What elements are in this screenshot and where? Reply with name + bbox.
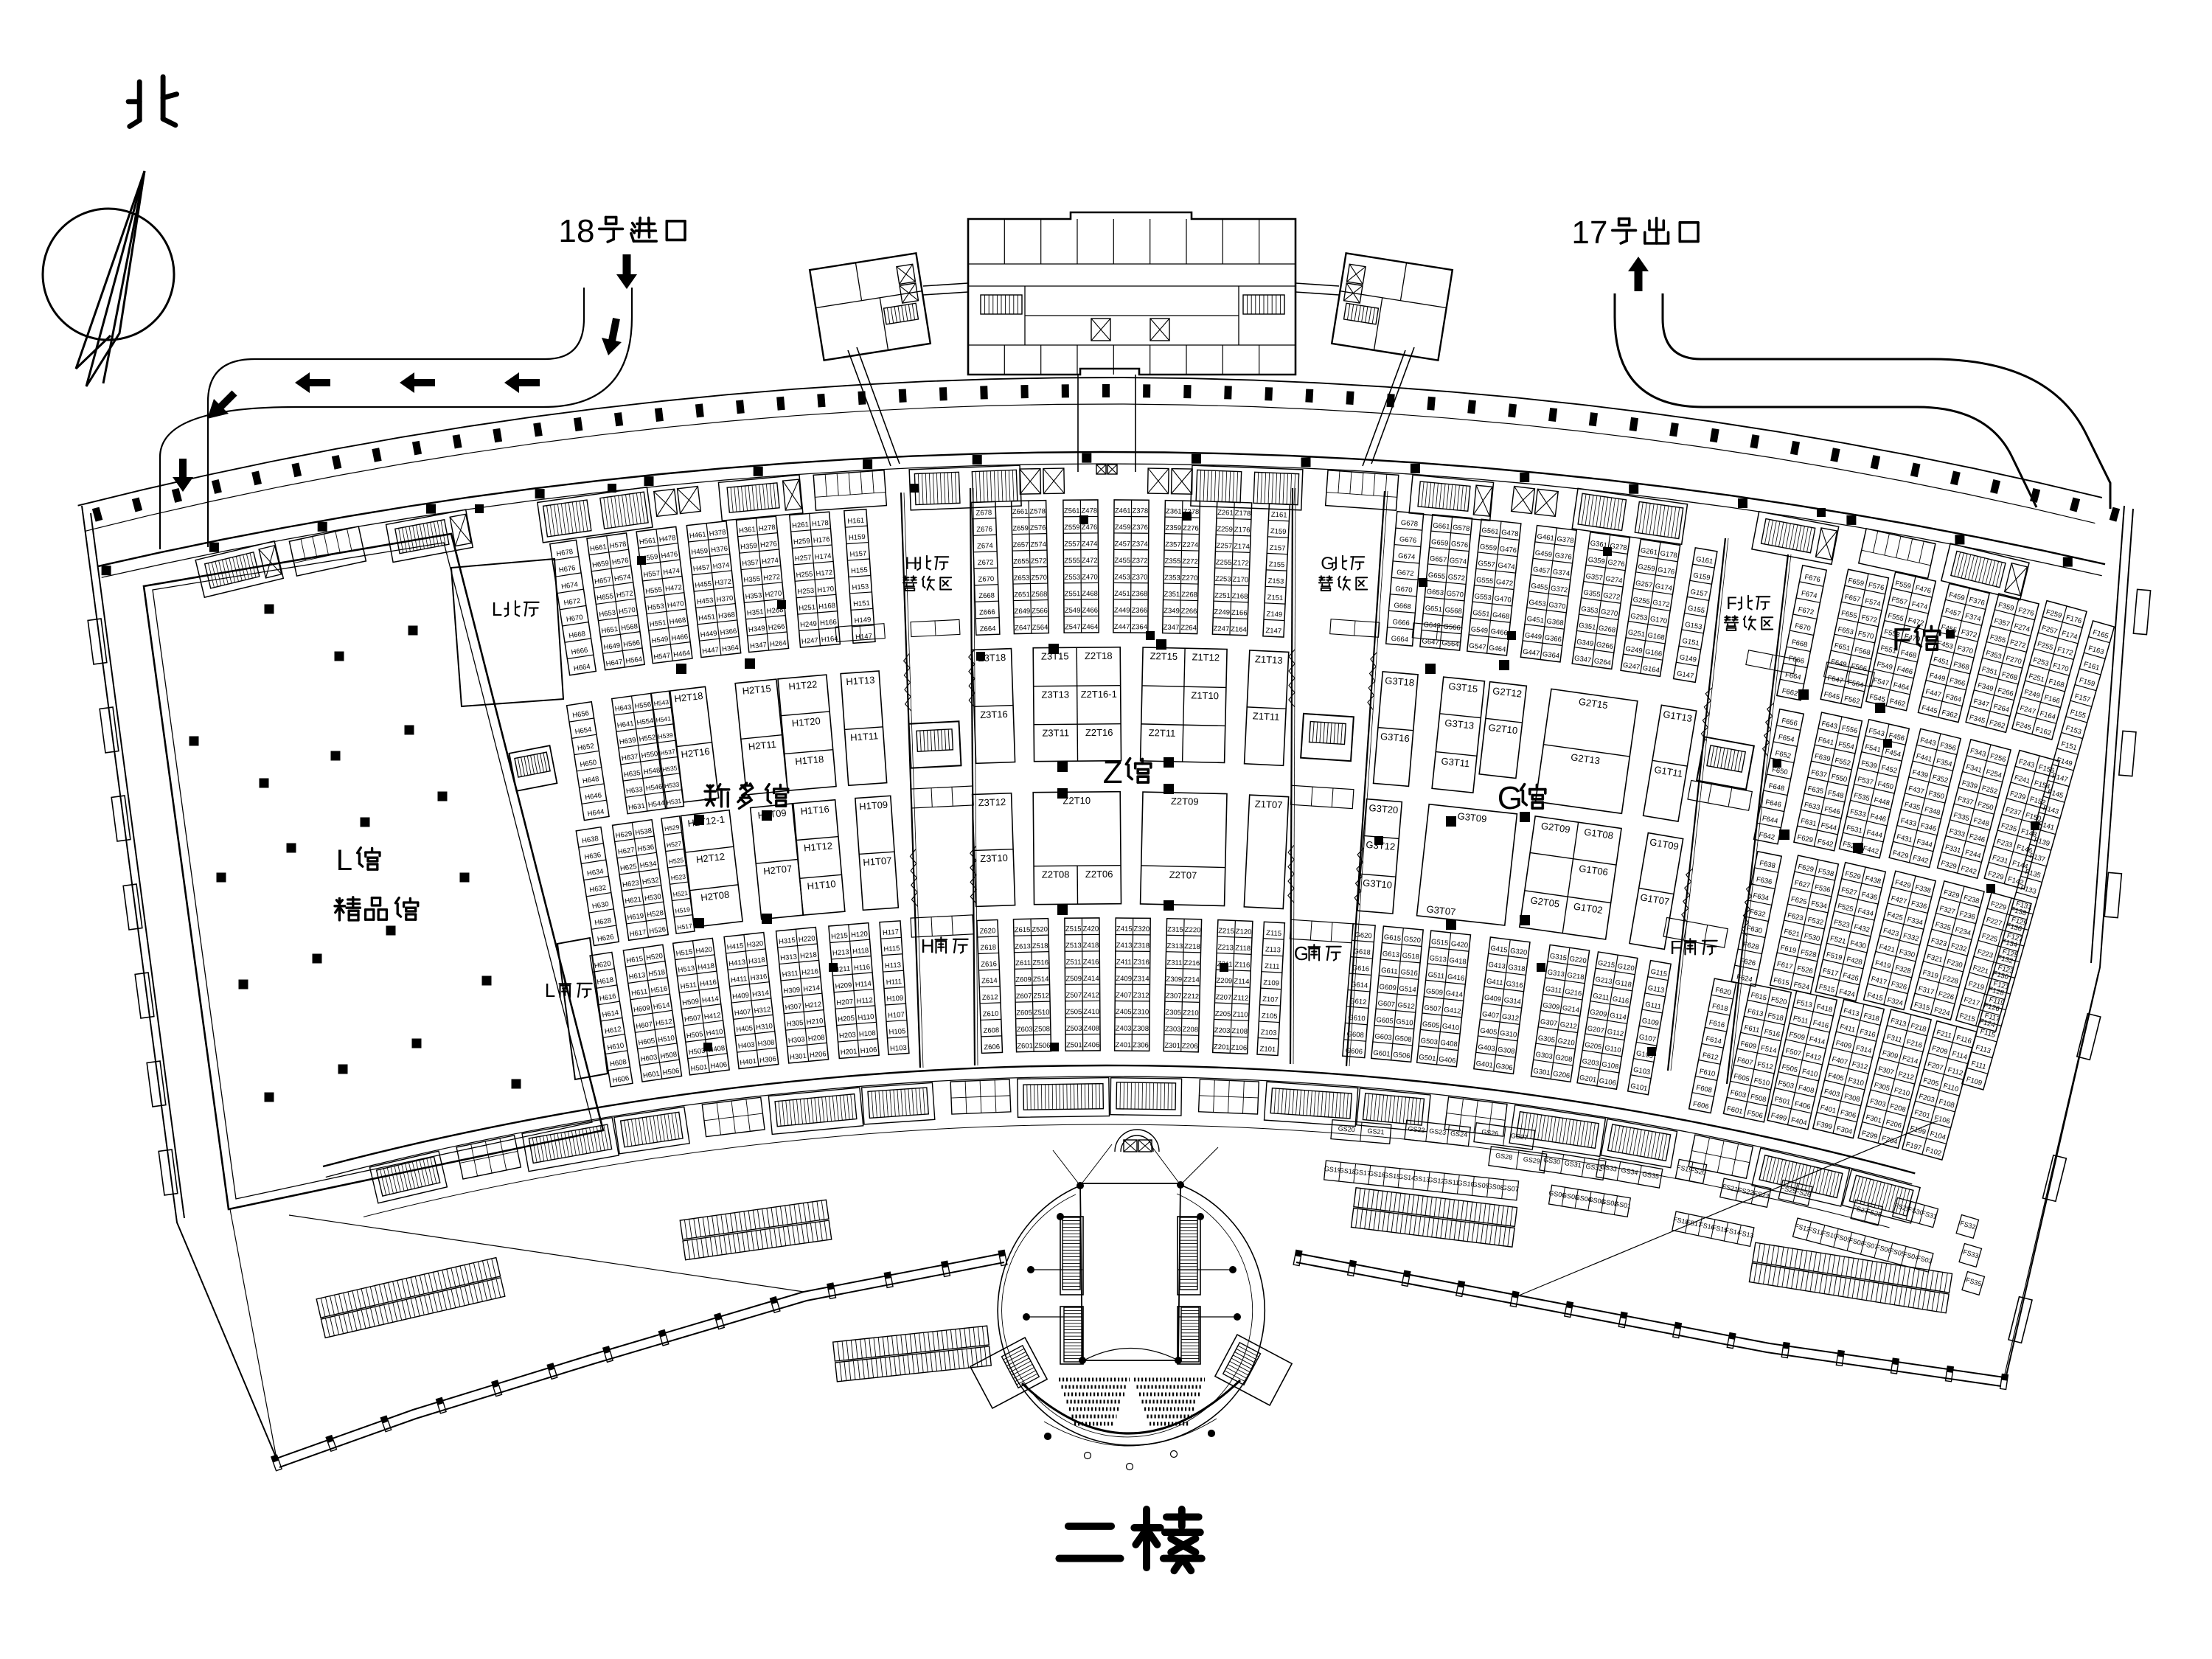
svg-text:Z457: Z457	[1115, 540, 1131, 549]
svg-text:Z174: Z174	[1234, 543, 1250, 552]
svg-text:G607: G607	[1377, 999, 1395, 1009]
svg-text:H120: H120	[851, 930, 869, 939]
svg-text:Z607: Z607	[1016, 992, 1032, 1001]
svg-text:H272: H272	[763, 573, 781, 582]
svg-text:Z605: Z605	[1016, 1009, 1032, 1017]
svg-text:Z251: Z251	[1214, 591, 1231, 600]
svg-text:Z1T11: Z1T11	[1252, 710, 1279, 723]
svg-text:H351: H351	[746, 608, 764, 618]
svg-text:Z311: Z311	[1166, 959, 1182, 967]
svg-text:G518: G518	[1402, 952, 1419, 961]
svg-text:Z172: Z172	[1233, 559, 1249, 568]
svg-text:Z1T12: Z1T12	[1192, 651, 1220, 663]
svg-text:Z561: Z561	[1064, 507, 1080, 515]
svg-text:Z208: Z208	[1182, 1026, 1198, 1034]
svg-text:Z408: Z408	[1083, 1025, 1099, 1033]
svg-text:H303: H303	[788, 1035, 806, 1045]
svg-text:G651: G651	[1425, 604, 1442, 613]
svg-text:Z506: Z506	[1034, 1042, 1051, 1050]
svg-text:H355: H355	[743, 575, 761, 585]
svg-text:Z111: Z111	[1265, 962, 1280, 971]
svg-text:Z207: Z207	[1215, 993, 1231, 1002]
svg-text:H118: H118	[852, 947, 869, 956]
svg-text:GS20: GS20	[1338, 1124, 1355, 1133]
svg-text:G: G	[1498, 780, 1523, 816]
svg-text:Z507: Z507	[1065, 992, 1082, 1000]
svg-text:G672: G672	[1397, 568, 1414, 578]
svg-text:H113: H113	[885, 961, 902, 970]
svg-text:Z170: Z170	[1232, 576, 1248, 585]
svg-text:Z155: Z155	[1268, 560, 1284, 569]
svg-text:Z2T16: Z2T16	[1085, 727, 1113, 738]
svg-text:Z668: Z668	[978, 591, 995, 600]
svg-text:Z270: Z270	[1182, 574, 1198, 582]
svg-text:H: H	[905, 554, 917, 574]
svg-text:H209: H209	[835, 981, 852, 991]
svg-text:Z674: Z674	[977, 542, 993, 551]
svg-text:Z613: Z613	[1015, 942, 1031, 950]
svg-text:Z107: Z107	[1262, 995, 1279, 1004]
svg-text:Z508: Z508	[1034, 1025, 1050, 1033]
svg-text:Z410: Z410	[1083, 1008, 1099, 1016]
svg-text:Z151: Z151	[1267, 594, 1283, 602]
svg-text:H255: H255	[796, 570, 813, 580]
svg-text:Z412: Z412	[1083, 992, 1099, 1000]
svg-text:G661: G661	[1433, 521, 1450, 531]
svg-text:H207: H207	[836, 998, 854, 1007]
svg-text:Z112: Z112	[1233, 994, 1248, 1003]
svg-text:Z406: Z406	[1084, 1041, 1100, 1049]
svg-text:Z520: Z520	[1032, 925, 1048, 933]
svg-text:H1T09: H1T09	[859, 799, 888, 813]
svg-text:Z455: Z455	[1114, 557, 1130, 565]
svg-text:Z103: Z103	[1260, 1029, 1276, 1037]
svg-text:Z503: Z503	[1066, 1025, 1082, 1033]
svg-text:Z578: Z578	[1029, 507, 1046, 515]
svg-text:H301: H301	[790, 1052, 807, 1062]
svg-text:Z309: Z309	[1166, 975, 1182, 984]
svg-text:Z216: Z216	[1183, 959, 1200, 968]
svg-text:Z359: Z359	[1165, 524, 1181, 532]
svg-text:Z1T13: Z1T13	[1255, 653, 1283, 666]
svg-text:Z161: Z161	[1271, 511, 1287, 520]
svg-text:Z220: Z220	[1185, 926, 1201, 935]
svg-text:H220: H220	[798, 934, 815, 944]
svg-text:H259: H259	[793, 537, 811, 546]
svg-text:Z451: Z451	[1114, 590, 1130, 598]
svg-text:H218: H218	[800, 951, 818, 961]
svg-text:G514: G514	[1399, 985, 1416, 995]
svg-text:Z261: Z261	[1217, 509, 1234, 518]
svg-text:G510: G510	[1396, 1018, 1413, 1027]
svg-text:Z157: Z157	[1269, 544, 1285, 553]
svg-text:Z572: Z572	[1031, 557, 1047, 566]
svg-text:H264: H264	[770, 639, 787, 649]
svg-text:G657: G657	[1430, 554, 1447, 564]
svg-text:Z557: Z557	[1064, 540, 1080, 549]
svg-text:H110: H110	[858, 1013, 874, 1023]
svg-text:Z268: Z268	[1181, 591, 1197, 599]
svg-text:Z403: Z403	[1116, 1025, 1132, 1033]
svg-text:F: F	[1670, 936, 1682, 959]
svg-text:H107: H107	[888, 1011, 905, 1020]
svg-text:H349: H349	[748, 625, 766, 634]
svg-text:1: 1	[558, 213, 576, 249]
svg-text:H359: H359	[740, 542, 758, 552]
svg-text:Z201: Z201	[1214, 1043, 1230, 1052]
svg-text:H247: H247	[801, 636, 819, 646]
svg-text:G616: G616	[1352, 964, 1369, 973]
svg-text:Z312: Z312	[1133, 992, 1150, 1000]
svg-text:Z3T11: Z3T11	[1042, 727, 1069, 738]
svg-text:H117: H117	[883, 928, 900, 937]
svg-text:H313: H313	[780, 953, 798, 962]
svg-text:Z601: Z601	[1017, 1042, 1033, 1050]
svg-text:G606: G606	[1345, 1047, 1363, 1057]
svg-text:Z414: Z414	[1083, 975, 1099, 983]
svg-text:G: G	[1321, 554, 1335, 574]
svg-text:Z566: Z566	[1032, 607, 1048, 615]
svg-text:H159: H159	[849, 533, 866, 543]
svg-text:G508: G508	[1394, 1034, 1412, 1044]
svg-text:Z315: Z315	[1167, 925, 1183, 934]
svg-text:H103: H103	[890, 1044, 907, 1053]
svg-text:Z614: Z614	[981, 977, 998, 986]
svg-text:Z114: Z114	[1234, 978, 1249, 987]
svg-text:Z515: Z515	[1065, 925, 1082, 933]
svg-text:Z368: Z368	[1132, 590, 1148, 598]
svg-text:H361: H361	[739, 526, 757, 535]
svg-text:G512: G512	[1397, 1001, 1415, 1011]
svg-text:L: L	[545, 979, 555, 1001]
svg-text:Z510: Z510	[1034, 1009, 1050, 1017]
svg-text:H249: H249	[800, 620, 818, 630]
svg-text:7: 7	[1590, 215, 1607, 251]
svg-text:Z320: Z320	[1133, 925, 1150, 933]
svg-text:Z364: Z364	[1131, 623, 1147, 631]
svg-text:Z420: Z420	[1082, 925, 1099, 933]
svg-text:Z255: Z255	[1216, 558, 1232, 567]
svg-text:Z303: Z303	[1165, 1025, 1181, 1034]
svg-text:Z553: Z553	[1064, 574, 1080, 582]
svg-text:Z205: Z205	[1214, 1010, 1231, 1019]
svg-text:Z115: Z115	[1266, 929, 1282, 938]
svg-text:Z516: Z516	[1032, 959, 1048, 967]
svg-text:Z314: Z314	[1133, 975, 1150, 983]
svg-text:H170: H170	[817, 585, 835, 595]
svg-text:Z449: Z449	[1114, 607, 1130, 615]
svg-text:Z409: Z409	[1116, 975, 1132, 983]
svg-text:Z308: Z308	[1133, 1025, 1149, 1033]
svg-text:Z405: Z405	[1116, 1008, 1132, 1016]
svg-text:H270: H270	[765, 590, 782, 599]
svg-text:Z264: Z264	[1180, 624, 1197, 632]
svg-text:L: L	[336, 844, 352, 877]
svg-text:8: 8	[577, 213, 594, 249]
svg-text:Z3T16: Z3T16	[980, 709, 1008, 720]
svg-text:G576: G576	[1451, 540, 1469, 549]
svg-text:Z247: Z247	[1213, 625, 1229, 633]
svg-text:H315: H315	[779, 936, 796, 946]
svg-text:Z370: Z370	[1132, 574, 1148, 582]
svg-text:H153: H153	[852, 582, 869, 592]
svg-text:H109: H109	[886, 994, 903, 1003]
svg-text:Z307: Z307	[1166, 992, 1182, 1001]
svg-text:Z547: Z547	[1065, 623, 1081, 631]
svg-text:Z353: Z353	[1164, 574, 1180, 582]
svg-text:Z672: Z672	[978, 558, 994, 567]
svg-text:Z564: Z564	[1032, 624, 1048, 632]
svg-text:Z316: Z316	[1133, 959, 1150, 967]
svg-text:H266: H266	[768, 622, 785, 632]
svg-text:Z518: Z518	[1032, 942, 1048, 950]
svg-text:Z478: Z478	[1081, 507, 1097, 515]
svg-text:G570: G570	[1446, 590, 1464, 599]
svg-text:Z661: Z661	[1012, 508, 1029, 516]
svg-text:Z178: Z178	[1234, 509, 1251, 518]
svg-text:Z164: Z164	[1231, 625, 1247, 634]
svg-text:Z415: Z415	[1116, 925, 1133, 933]
svg-text:H357: H357	[742, 558, 759, 568]
svg-text:Z110: Z110	[1232, 1011, 1248, 1020]
svg-text:G674: G674	[1398, 552, 1416, 562]
svg-text:Z474: Z474	[1082, 540, 1098, 549]
svg-text:H203: H203	[839, 1031, 857, 1040]
svg-text:H161: H161	[847, 517, 864, 526]
svg-text:H309: H309	[783, 986, 801, 995]
svg-text:Z551: Z551	[1065, 590, 1081, 598]
svg-text:Z203: Z203	[1214, 1026, 1231, 1035]
svg-text:H208: H208	[807, 1034, 825, 1043]
svg-text:Z2T11: Z2T11	[1149, 727, 1176, 739]
svg-text:Z105: Z105	[1262, 1012, 1278, 1020]
svg-text:Z218: Z218	[1184, 942, 1200, 951]
svg-text:Z416: Z416	[1083, 959, 1099, 967]
svg-text:Z678: Z678	[975, 509, 992, 518]
svg-text:Z676: Z676	[976, 525, 992, 534]
svg-text:Z1T10: Z1T10	[1191, 689, 1219, 701]
svg-text:Z418: Z418	[1083, 942, 1099, 950]
svg-text:Z670: Z670	[978, 575, 994, 584]
svg-text:Z109: Z109	[1263, 978, 1279, 987]
svg-text:H214: H214	[803, 984, 821, 994]
svg-text:G608: G608	[1346, 1030, 1364, 1040]
svg-text:Z653: Z653	[1014, 574, 1030, 582]
svg-text:Z413: Z413	[1116, 942, 1133, 950]
svg-text:H278: H278	[758, 524, 776, 533]
svg-text:Z: Z	[1103, 754, 1123, 790]
svg-text:Z159: Z159	[1270, 527, 1287, 536]
svg-text:H157: H157	[849, 549, 866, 559]
svg-text:H210: H210	[806, 1017, 824, 1026]
svg-text:G578: G578	[1453, 524, 1470, 533]
svg-text:G568: G568	[1444, 606, 1462, 616]
svg-text:G615: G615	[1383, 933, 1401, 943]
svg-text:Z176: Z176	[1234, 526, 1251, 535]
svg-text:Z574: Z574	[1030, 540, 1046, 549]
svg-text:Z514: Z514	[1033, 975, 1049, 984]
svg-text:H172: H172	[815, 568, 833, 578]
svg-text:G659: G659	[1431, 538, 1449, 548]
svg-text:G620: G620	[1354, 931, 1372, 941]
svg-text:H311: H311	[782, 970, 799, 979]
svg-text:Z1T07: Z1T07	[1255, 798, 1283, 810]
svg-text:H253: H253	[797, 587, 815, 597]
svg-text:Z453: Z453	[1114, 574, 1130, 582]
svg-text:H251: H251	[799, 603, 816, 613]
svg-text:H174: H174	[814, 552, 832, 562]
svg-text:Z3T10: Z3T10	[980, 852, 1008, 864]
svg-text:Z447: Z447	[1114, 623, 1130, 631]
svg-text:Z166: Z166	[1231, 609, 1248, 618]
svg-text:Z659: Z659	[1012, 524, 1029, 532]
svg-text:H176: H176	[813, 535, 830, 545]
svg-text:Z108: Z108	[1231, 1027, 1248, 1036]
svg-text:Z351: Z351	[1164, 591, 1180, 599]
svg-text:Z106: Z106	[1231, 1044, 1247, 1053]
svg-text:Z651: Z651	[1014, 591, 1030, 599]
svg-text:H206: H206	[810, 1050, 827, 1060]
svg-text:F: F	[1726, 594, 1737, 613]
svg-text:H201: H201	[840, 1048, 858, 1057]
svg-text:H347: H347	[750, 641, 768, 650]
svg-text:Z513: Z513	[1065, 942, 1082, 950]
svg-text:Z401: Z401	[1116, 1041, 1132, 1049]
svg-text:Z649: Z649	[1015, 608, 1031, 616]
svg-text:H276: H276	[760, 540, 778, 549]
svg-text:H116: H116	[854, 963, 871, 973]
svg-text:H205: H205	[838, 1015, 855, 1024]
svg-text:G610: G610	[1348, 1014, 1366, 1023]
svg-text:H105: H105	[888, 1027, 905, 1036]
svg-text:G520: G520	[1403, 935, 1421, 945]
svg-text:H111: H111	[886, 978, 902, 987]
svg-text:Z259: Z259	[1217, 525, 1233, 534]
svg-text:H216: H216	[801, 967, 819, 977]
svg-text:G611: G611	[1381, 967, 1398, 976]
svg-text:Z349: Z349	[1164, 607, 1180, 615]
svg-text:Z509: Z509	[1065, 975, 1082, 983]
svg-text:GS21: GS21	[1367, 1127, 1385, 1136]
svg-text:H166: H166	[820, 618, 838, 627]
svg-text:Z257: Z257	[1216, 542, 1232, 551]
svg-text:G668: G668	[1394, 602, 1411, 611]
svg-text:Z647: Z647	[1015, 624, 1031, 632]
svg-text:Z459: Z459	[1115, 524, 1131, 532]
svg-text:Z611: Z611	[1015, 959, 1031, 967]
svg-text:Z313: Z313	[1166, 942, 1183, 951]
svg-text:Z214: Z214	[1183, 975, 1200, 984]
svg-text:Z407: Z407	[1116, 992, 1132, 1000]
svg-text:Z603: Z603	[1017, 1026, 1033, 1034]
svg-text:Z468: Z468	[1082, 590, 1098, 598]
svg-text:Z568: Z568	[1032, 591, 1048, 599]
svg-text:Z570: Z570	[1031, 574, 1047, 582]
svg-text:Z209: Z209	[1216, 977, 1232, 986]
svg-text:G613: G613	[1382, 950, 1399, 959]
svg-text:Z347: Z347	[1164, 624, 1180, 632]
svg-text:Z3T12: Z3T12	[978, 796, 1006, 808]
svg-text:Z476: Z476	[1082, 524, 1098, 532]
svg-text:G609: G609	[1379, 983, 1397, 992]
svg-text:Z2T07: Z2T07	[1169, 869, 1197, 881]
svg-text:G605: G605	[1376, 1016, 1394, 1026]
svg-text:Z153: Z153	[1267, 577, 1284, 586]
svg-text:Z374: Z374	[1132, 540, 1148, 549]
svg-text:Z461: Z461	[1115, 507, 1131, 515]
svg-text:Z249: Z249	[1214, 608, 1230, 617]
svg-text:Z215: Z215	[1218, 927, 1234, 936]
svg-text:Z101: Z101	[1259, 1045, 1276, 1054]
svg-text:Z655: Z655	[1013, 557, 1029, 566]
svg-text:H261: H261	[792, 521, 810, 530]
svg-text:Z464: Z464	[1082, 623, 1099, 631]
svg-text:Z612: Z612	[982, 993, 998, 1002]
svg-text:H114: H114	[855, 980, 872, 990]
svg-text:G653: G653	[1426, 588, 1444, 597]
svg-text:Z272: Z272	[1182, 557, 1198, 566]
svg-text:Z212: Z212	[1183, 992, 1199, 1001]
svg-text:G516: G516	[1400, 968, 1418, 978]
svg-text:H307: H307	[785, 1003, 802, 1012]
svg-text:Z618: Z618	[980, 944, 996, 953]
svg-text:H: H	[921, 935, 935, 957]
svg-text:Z301: Z301	[1164, 1042, 1180, 1051]
svg-text:H213: H213	[832, 948, 850, 958]
svg-text:G678: G678	[1400, 519, 1418, 529]
svg-text:Z501: Z501	[1066, 1041, 1082, 1049]
svg-text:Z606: Z606	[984, 1043, 1000, 1052]
svg-text:G572: G572	[1447, 573, 1465, 582]
svg-text:Z666: Z666	[979, 608, 995, 617]
svg-text:Z466: Z466	[1082, 607, 1098, 615]
svg-text:Z376: Z376	[1132, 524, 1148, 532]
svg-text:Z610: Z610	[983, 1010, 999, 1019]
svg-text:H1T11: H1T11	[850, 730, 879, 743]
svg-text:H149: H149	[854, 616, 871, 625]
svg-text:H305: H305	[786, 1019, 804, 1029]
svg-text:Z472: Z472	[1082, 557, 1098, 565]
svg-text:H212: H212	[804, 1001, 822, 1010]
svg-text:Z118: Z118	[1235, 945, 1251, 953]
svg-text:H1T13: H1T13	[846, 674, 875, 687]
svg-text:H257: H257	[794, 554, 812, 563]
svg-text:G601: G601	[1373, 1049, 1391, 1059]
svg-text:Z113: Z113	[1265, 945, 1281, 954]
svg-text:Z2T18: Z2T18	[1085, 650, 1113, 661]
svg-text:Z147: Z147	[1265, 627, 1281, 636]
svg-text:Z318: Z318	[1133, 942, 1150, 950]
svg-text:Z168: Z168	[1232, 592, 1248, 601]
svg-text:Z372: Z372	[1132, 557, 1148, 565]
svg-text:Z505: Z505	[1066, 1008, 1082, 1016]
svg-text:Z609: Z609	[1015, 975, 1032, 984]
svg-text:Z116: Z116	[1234, 961, 1250, 970]
svg-text:Z549: Z549	[1065, 607, 1081, 615]
svg-text:H274: H274	[762, 557, 779, 566]
svg-text:Z2T08: Z2T08	[1042, 869, 1070, 880]
svg-text:G618: G618	[1353, 947, 1371, 957]
svg-text:Z361: Z361	[1166, 507, 1182, 515]
svg-text:Z657: Z657	[1013, 541, 1029, 549]
svg-text:Z411: Z411	[1116, 959, 1132, 967]
svg-text:Z576: Z576	[1030, 524, 1046, 532]
svg-text:Z355: Z355	[1164, 557, 1180, 566]
svg-text:Z616: Z616	[981, 960, 997, 969]
svg-text:G612: G612	[1349, 997, 1367, 1006]
svg-text:Z608: Z608	[983, 1026, 999, 1035]
svg-text:Z206: Z206	[1182, 1042, 1198, 1051]
